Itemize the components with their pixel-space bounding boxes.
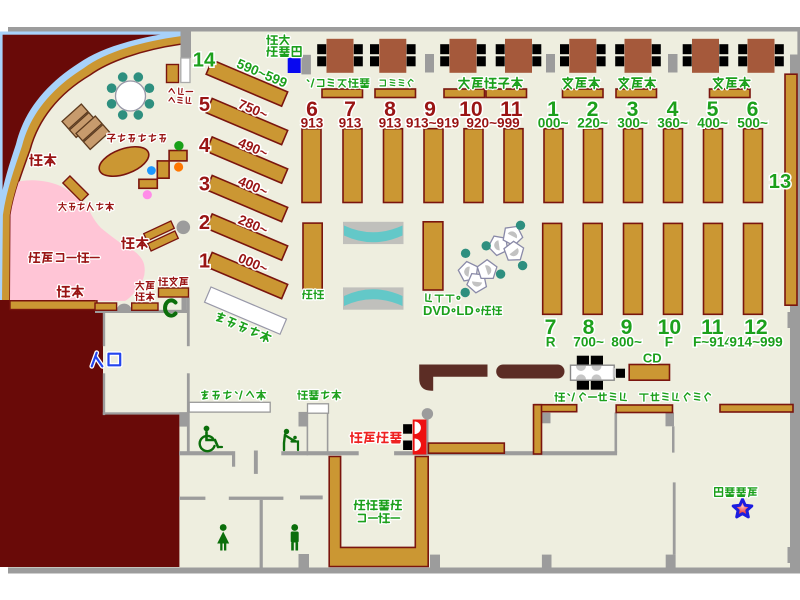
svg-text:360~: 360~ [657,115,688,130]
svg-text:913~919: 913~919 [406,115,460,130]
svg-text:300~: 300~ [617,115,648,130]
svg-text:914~999: 914~999 [729,334,783,349]
svg-text:500~: 500~ [737,115,768,130]
svg-text:CD: CD [643,351,662,366]
svg-text:920~999: 920~999 [466,115,520,130]
svg-text:F~914: F~914 [693,334,732,349]
svg-text:2: 2 [199,212,210,234]
svg-text:LD: LD [456,303,473,318]
svg-text:5: 5 [199,94,210,116]
svg-text:3: 3 [199,174,210,196]
svg-text:913: 913 [339,115,362,130]
svg-text:000~: 000~ [538,115,569,130]
svg-text:F: F [665,334,673,349]
svg-text:1: 1 [199,251,210,273]
svg-text:913: 913 [301,115,324,130]
svg-text:913: 913 [379,115,402,130]
svg-text:14: 14 [193,50,216,72]
svg-text:13: 13 [769,171,791,193]
svg-text:700~: 700~ [573,334,604,349]
svg-text:DVD: DVD [423,303,450,318]
svg-text:400~: 400~ [697,115,728,130]
svg-text:R: R [546,334,556,349]
svg-text:4: 4 [199,135,211,157]
svg-text:220~: 220~ [577,115,608,130]
svg-text:800~: 800~ [611,334,642,349]
